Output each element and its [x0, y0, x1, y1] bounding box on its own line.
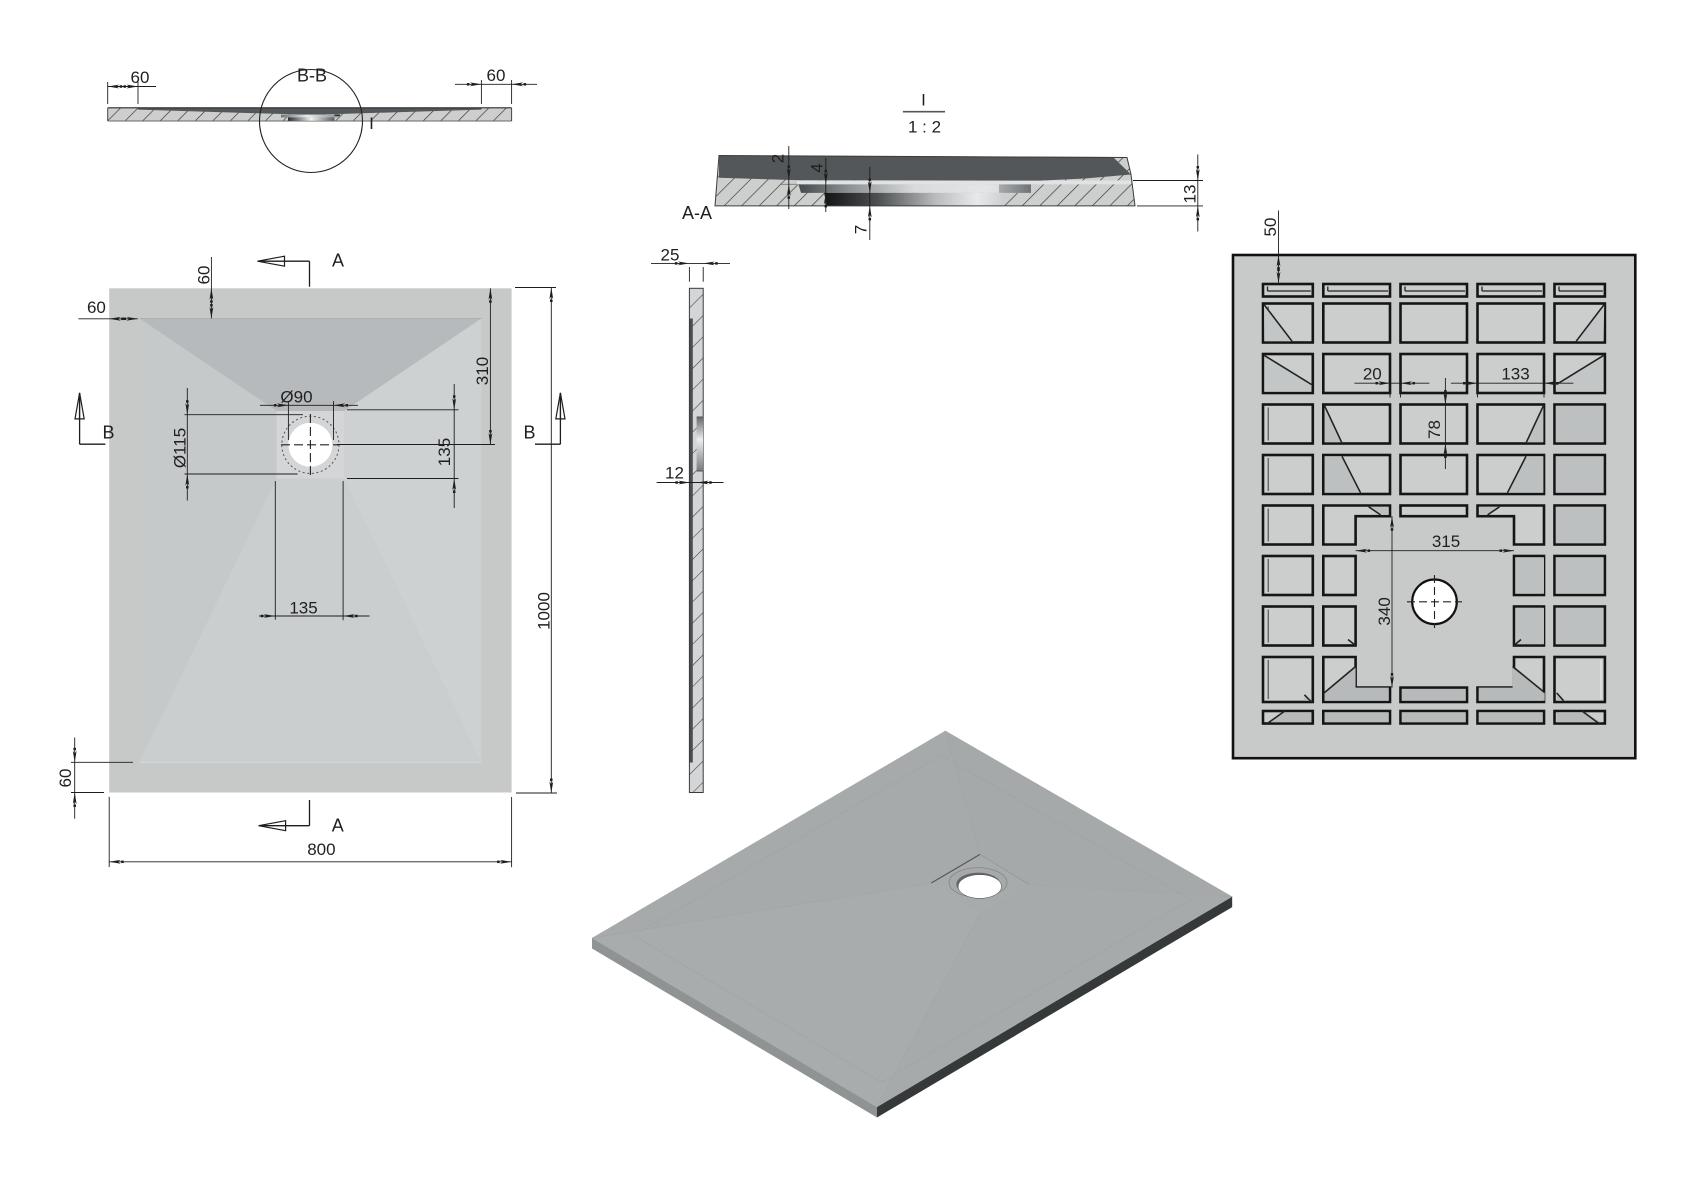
svg-text:60: 60 [487, 66, 506, 85]
svg-text:Ø115: Ø115 [171, 428, 190, 468]
svg-text:Ø90: Ø90 [280, 387, 312, 406]
svg-text:60: 60 [131, 68, 150, 87]
svg-text:133: 133 [1501, 364, 1529, 383]
svg-text:I: I [369, 114, 374, 133]
svg-text:I: I [921, 91, 926, 110]
svg-text:50: 50 [1261, 218, 1280, 237]
svg-text:340: 340 [1375, 597, 1394, 625]
svg-text:1 : 2: 1 : 2 [908, 118, 941, 137]
svg-text:A-A: A-A [682, 203, 712, 223]
svg-text:135: 135 [289, 599, 317, 618]
svg-text:A: A [332, 816, 344, 836]
svg-text:78: 78 [1425, 420, 1444, 439]
svg-text:20: 20 [1363, 364, 1382, 383]
svg-text:13: 13 [1181, 185, 1200, 204]
svg-text:135: 135 [435, 438, 454, 466]
svg-text:B: B [523, 422, 535, 442]
svg-text:4: 4 [808, 163, 827, 172]
svg-text:800: 800 [307, 840, 335, 859]
svg-text:315: 315 [1432, 532, 1460, 551]
svg-text:A: A [332, 251, 344, 271]
svg-text:60: 60 [87, 298, 106, 317]
svg-text:B-B: B-B [297, 66, 327, 86]
svg-text:12: 12 [665, 464, 684, 483]
svg-text:60: 60 [56, 769, 75, 788]
svg-text:1000: 1000 [535, 592, 554, 630]
svg-text:310: 310 [473, 357, 492, 385]
svg-text:2: 2 [769, 154, 788, 163]
svg-text:25: 25 [661, 246, 680, 265]
svg-text:B: B [102, 422, 114, 442]
svg-text:7: 7 [852, 225, 871, 234]
svg-text:60: 60 [195, 266, 214, 285]
